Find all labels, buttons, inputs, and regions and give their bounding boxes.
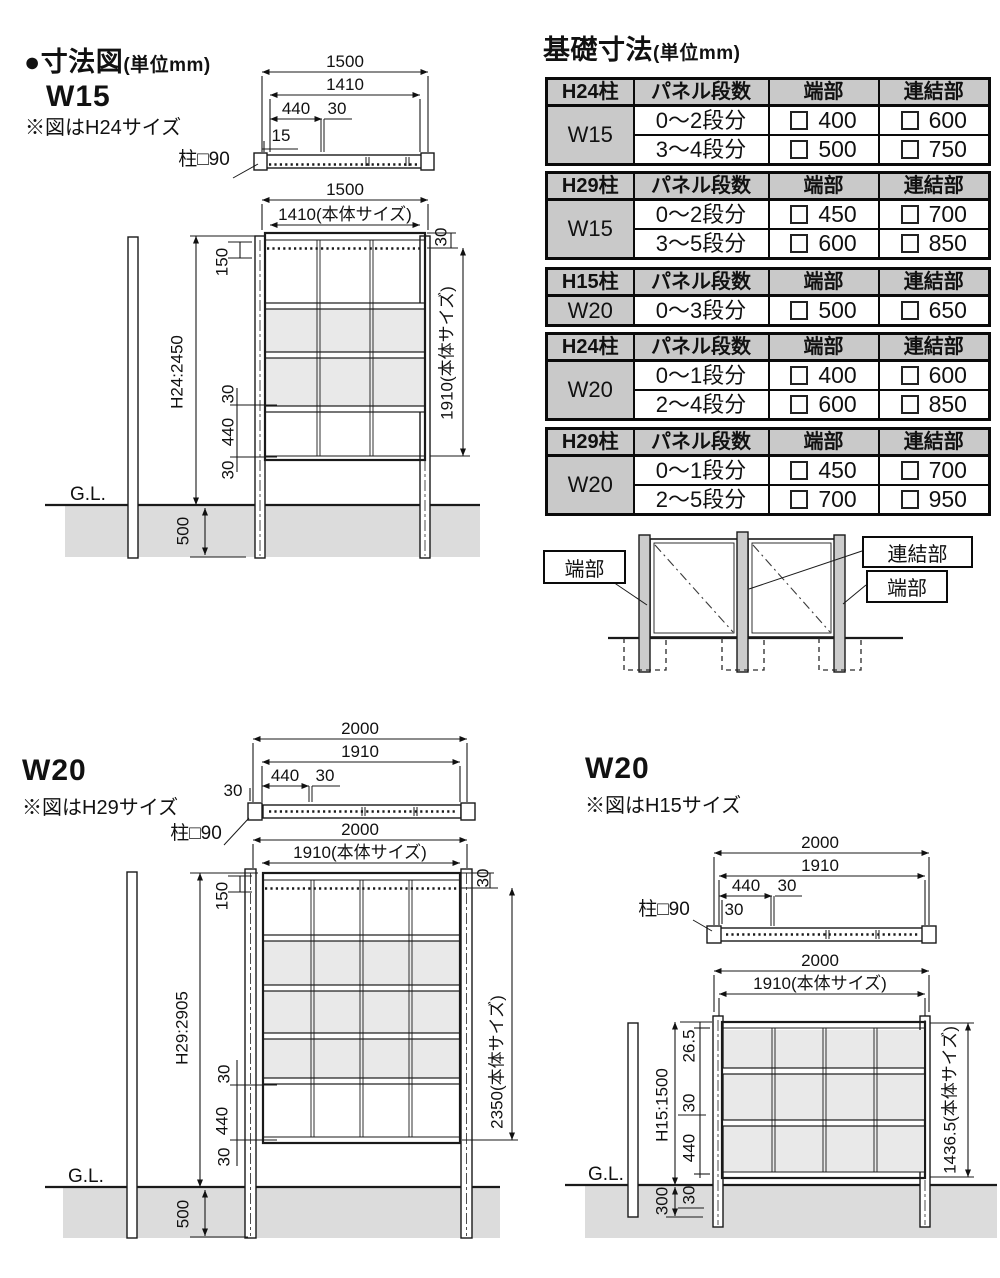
end-value: 500 — [769, 296, 879, 326]
unit-note: (単位mm) — [653, 43, 740, 64]
joint-value: 700 — [879, 200, 990, 230]
legend-end-right: 端部 — [866, 570, 948, 603]
dim-label: H24:2450 — [168, 335, 187, 409]
col-header: H29柱 — [547, 173, 634, 200]
dimension-drawing-title: ●寸法図 — [24, 47, 123, 77]
joint-value: 600 — [879, 106, 990, 136]
dim-label: 440 — [219, 418, 238, 446]
col-header: 連結部 — [879, 334, 990, 361]
leader-line — [224, 818, 249, 845]
col-header: 端部 — [769, 334, 879, 361]
foundation-table-h24-w20: H24柱 パネル段数 端部 連結部 W20 0〜1段分 400 600 2〜4段… — [545, 332, 991, 421]
square-symbol — [901, 395, 919, 414]
foundation-table-h15-w20: H15柱 パネル段数 端部 連結部 W20 0〜3段分 500 650 — [545, 267, 991, 327]
panel-steps: 0〜1段分 — [634, 456, 769, 486]
square-symbol — [790, 395, 808, 414]
side-post — [127, 872, 137, 1238]
end-value: 400 — [769, 361, 879, 391]
w15-top-view: 1500 1410 440 30 15 柱□90 — [178, 52, 434, 178]
col-header: 連結部 — [879, 79, 990, 106]
square-symbol — [790, 461, 808, 480]
dim-label: 150 — [213, 882, 232, 910]
dim-label: 1410 — [326, 75, 364, 94]
w15-heading: W15 — [46, 80, 111, 114]
dim-label: 30 — [215, 1065, 234, 1084]
col-header: 端部 — [769, 269, 879, 296]
square-symbol — [790, 140, 808, 159]
w15-note: ※図はH24サイズ — [25, 111, 181, 140]
end-value: 700 — [769, 485, 879, 515]
dim-label: 150 — [213, 248, 232, 276]
width-label: W20 — [547, 456, 634, 515]
width-label: W20 — [547, 361, 634, 420]
square-symbol — [901, 366, 919, 385]
dim-label: 2000 — [801, 833, 839, 852]
col-header: パネル段数 — [634, 173, 769, 200]
end-value: 450 — [769, 200, 879, 230]
end-value: 450 — [769, 456, 879, 486]
w20h29-top-view: 2000 1910 440 30 30 柱□90 — [170, 719, 475, 845]
end-value: 500 — [769, 135, 879, 165]
col-header: 連結部 — [879, 173, 990, 200]
panel-steps: 2〜5段分 — [634, 485, 769, 515]
table-header-row: H24柱 パネル段数 端部 連結部 — [547, 334, 990, 361]
table-row: W15 0〜2段分 450 700 — [547, 200, 990, 230]
panel-steps: 0〜2段分 — [634, 106, 769, 136]
square-symbol — [901, 205, 919, 224]
w20h15-note: ※図はH15サイズ — [585, 789, 741, 818]
dim-label: 30 — [778, 876, 797, 895]
joint-value: 850 — [879, 390, 990, 420]
square-symbol — [790, 234, 808, 253]
dim-label: 2350(本体サイズ) — [488, 995, 507, 1129]
joint-value: 700 — [879, 456, 990, 486]
square-symbol — [901, 461, 919, 480]
dim-label: 1410(本体サイズ) — [278, 205, 412, 224]
col-header: パネル段数 — [634, 79, 769, 106]
col-header: H24柱 — [547, 79, 634, 106]
square-symbol — [790, 301, 808, 320]
table-row: W20 0〜1段分 450 700 — [547, 456, 990, 486]
square-symbol — [901, 490, 919, 509]
col-header: 端部 — [769, 79, 879, 106]
foundation-title: 基礎寸法(単位mm) — [543, 28, 740, 67]
dim-label: 440 — [282, 99, 310, 118]
dim-label: 15 — [272, 126, 291, 145]
dim-label: 30 — [680, 1094, 699, 1113]
table-row: W20 0〜3段分 500 650 — [547, 296, 990, 326]
square-symbol — [901, 301, 919, 320]
dim-label: 30 — [224, 781, 243, 800]
dim-label: 300 — [653, 1187, 672, 1215]
w20h29-heading: W20 — [22, 754, 87, 788]
side-post — [128, 237, 138, 558]
foundation-table-h24-w15: H24柱 パネル段数 端部 連結部 W15 0〜2段分 400 600 3〜4段… — [545, 77, 991, 166]
foundation-table-h29-w20: H29柱 パネル段数 端部 連結部 W20 0〜1段分 450 700 2〜5段… — [545, 427, 991, 516]
width-label: W15 — [547, 106, 634, 165]
w20h15-front-view: 2000 1910(本体サイズ) G.L. — [565, 951, 997, 1238]
post-size-label: 柱□90 — [170, 822, 222, 844]
width-label: W20 — [547, 296, 634, 326]
dim-label: 1500 — [326, 180, 364, 199]
dim-label: 1910 — [801, 856, 839, 875]
post-cap-right — [421, 153, 434, 170]
fence-plan-bar — [262, 155, 428, 168]
legend-joint: 連結部 — [862, 536, 973, 568]
unit-note: (単位mm) — [123, 55, 210, 76]
post-cap-right — [461, 803, 475, 820]
panel-steps: 2〜4段分 — [634, 390, 769, 420]
dim-label: 440 — [732, 876, 760, 895]
dim-label: 440 — [271, 766, 299, 785]
page-title: ●寸法図(単位mm) — [24, 40, 211, 79]
leader-line — [843, 585, 866, 604]
dim-label: 30 — [328, 99, 347, 118]
dim-label: 1910(本体サイズ) — [438, 286, 457, 420]
square-symbol — [901, 234, 919, 253]
joint-value: 850 — [879, 229, 990, 259]
joint-post — [737, 532, 748, 672]
table-header-row: H24柱 パネル段数 端部 連結部 — [547, 79, 990, 106]
dim-label: 30 — [219, 385, 238, 404]
ground-level-label: G.L. — [68, 1166, 104, 1187]
col-header: 連結部 — [879, 429, 990, 456]
post-cap-left — [707, 926, 721, 943]
dim-label: 30 — [432, 228, 451, 247]
dim-label: 500 — [174, 517, 193, 545]
post-cap-right — [922, 926, 936, 943]
dim-label: 1910(本体サイズ) — [753, 974, 887, 993]
legend-end-left: 端部 — [543, 550, 626, 584]
dim-label: 440 — [680, 1134, 699, 1162]
panel-steps: 3〜4段分 — [634, 135, 769, 165]
joint-value: 600 — [879, 361, 990, 391]
post-size-label: 柱□90 — [638, 898, 690, 920]
table-header-row: H15柱 パネル段数 端部 連結部 — [547, 269, 990, 296]
dim-label: H29:2905 — [173, 991, 192, 1065]
dim-label: 2000 — [341, 820, 379, 839]
w20h29-front-view: 2000 1910(本体サイズ) G.L. — [45, 820, 518, 1238]
table-header-row: H29柱 パネル段数 端部 連結部 — [547, 429, 990, 456]
dim-label: 1910(本体サイズ) — [293, 843, 427, 862]
square-symbol — [790, 111, 808, 130]
end-value: 600 — [769, 390, 879, 420]
dim-label: 30 — [725, 900, 744, 919]
w20h29-note: ※図はH29サイズ — [22, 791, 178, 820]
fence-plan-bar — [720, 928, 923, 941]
post-size-label: 柱□90 — [178, 148, 230, 170]
dim-label: 1910 — [341, 742, 379, 761]
side-post — [628, 1023, 638, 1217]
dim-label: 1500 — [326, 52, 364, 71]
dim-label: H15:1500 — [653, 1068, 672, 1142]
dim-label: 440 — [213, 1107, 232, 1135]
square-symbol — [790, 205, 808, 224]
col-header: パネル段数 — [634, 429, 769, 456]
dim-label: 30 — [215, 1148, 234, 1167]
end-value: 400 — [769, 106, 879, 136]
col-header: パネル段数 — [634, 334, 769, 361]
leader-line — [233, 164, 258, 178]
dim-label: 30 — [219, 461, 238, 480]
table-row: W15 0〜2段分 400 600 — [547, 106, 990, 136]
dim-label: 30 — [474, 869, 493, 888]
dim-label: 1436.5(本体サイズ) — [941, 1026, 960, 1174]
square-symbol — [790, 366, 808, 385]
end-value: 600 — [769, 229, 879, 259]
ground-level-label: G.L. — [588, 1164, 624, 1185]
table-header-row: H29柱 パネル段数 端部 連結部 — [547, 173, 990, 200]
joint-value: 950 — [879, 485, 990, 515]
joint-value: 650 — [879, 296, 990, 326]
dim-label: 2000 — [341, 719, 379, 738]
dim-label: 2000 — [801, 951, 839, 970]
width-label: W15 — [547, 200, 634, 259]
panel-steps: 3〜5段分 — [634, 229, 769, 259]
w20h15-top-view: 2000 1910 440 30 30 柱□90 — [638, 833, 936, 943]
table-row: W20 0〜1段分 400 600 — [547, 361, 990, 391]
dim-label: 30 — [316, 766, 335, 785]
square-symbol — [901, 111, 919, 130]
col-header: パネル段数 — [634, 269, 769, 296]
dim-label: 30 — [680, 1186, 699, 1205]
joint-value: 750 — [879, 135, 990, 165]
col-header: 端部 — [769, 173, 879, 200]
square-symbol — [901, 140, 919, 159]
w15-front-view: 1500 1410(本体サイズ) G.L. — [45, 180, 480, 558]
dim-label: 26.5 — [680, 1029, 699, 1062]
square-symbol — [790, 490, 808, 509]
col-header: 端部 — [769, 429, 879, 456]
post-cap-left — [248, 803, 262, 820]
ground-level-label: G.L. — [70, 484, 106, 505]
dim-label: 500 — [174, 1200, 193, 1228]
panel-steps: 0〜2段分 — [634, 200, 769, 230]
col-header: H24柱 — [547, 334, 634, 361]
col-header: 連結部 — [879, 269, 990, 296]
post-cap-left — [254, 153, 267, 170]
foundation-table-h29-w15: H29柱 パネル段数 端部 連結部 W15 0〜2段分 450 700 3〜5段… — [545, 171, 991, 260]
panel-steps: 0〜1段分 — [634, 361, 769, 391]
col-header: H29柱 — [547, 429, 634, 456]
panel-steps: 0〜3段分 — [634, 296, 769, 326]
foundation-illustration — [608, 532, 903, 672]
spec-sheet: 1500 1410 440 30 15 柱□90 — [0, 0, 1000, 1278]
foundation-title-text: 基礎寸法 — [543, 35, 653, 65]
w20h15-heading: W20 — [585, 752, 650, 786]
col-header: H15柱 — [547, 269, 634, 296]
